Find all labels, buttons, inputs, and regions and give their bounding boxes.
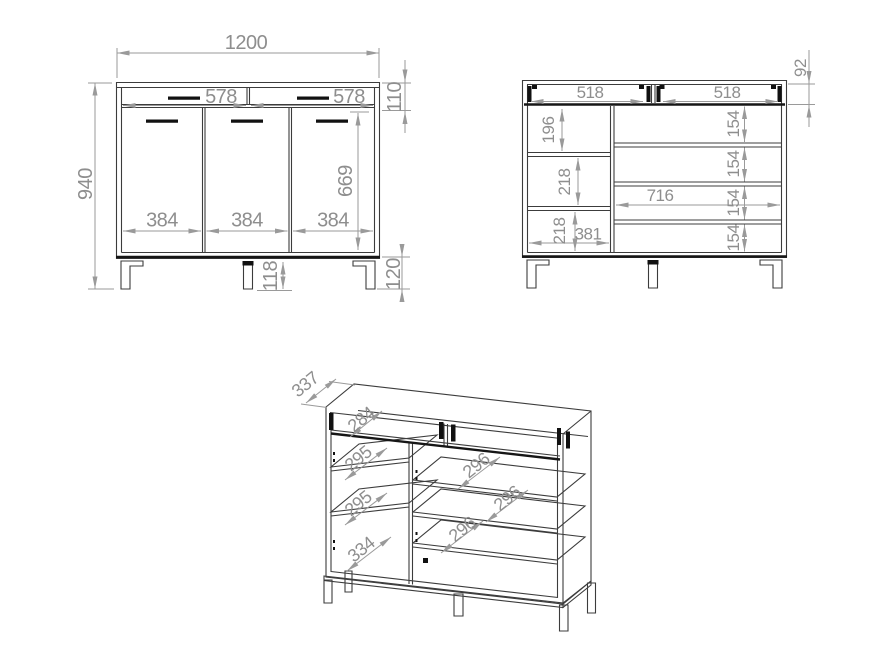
dim-drawer-inner-1: 518 (577, 83, 604, 102)
dim-left-width: 381 (575, 225, 602, 244)
dim-overall-height: 940 (75, 168, 97, 200)
dim-gap-4: 154 (724, 225, 743, 252)
dim-gap-2: 154 (724, 151, 743, 178)
dim-door-height: 669 (335, 165, 357, 197)
dim-left-comp-3: 218 (550, 218, 569, 245)
dim-drawer-width-2: 578 (333, 86, 365, 108)
dim-left-comp-1: 196 (539, 117, 558, 144)
front-handles (146, 97, 348, 266)
dim-left-comp-2: 218 (555, 169, 574, 196)
dim-gap-3: 154 (724, 190, 743, 217)
dim-drawer-row-height: 110 (384, 81, 406, 112)
iso-view: 337 284 295 295 334 296 296 296 (288, 367, 596, 631)
internal-view: 92 518 518 196 218 218 381 716 154 154 1… (522, 50, 815, 288)
dim-door-width-3: 384 (317, 210, 349, 232)
drawing-sheet: 1200 940 578 578 110 669 384 384 384 118… (0, 0, 888, 666)
dim-center-leg-height: 118 (260, 260, 282, 291)
dim-door-width-1: 384 (146, 210, 178, 232)
dim-door-width-2: 384 (231, 210, 263, 232)
technical-drawing: 1200 940 578 578 110 669 384 384 384 118… (0, 0, 888, 666)
dim-gap-1: 154 (724, 111, 743, 138)
dim-drawer-inner-2: 518 (714, 83, 741, 102)
front-view: 1200 940 578 578 110 669 384 384 384 118… (75, 32, 411, 301)
dim-overall-width: 1200 (225, 32, 268, 54)
dim-depth: 337 (288, 367, 323, 401)
dim-drawer-width-1: 578 (205, 86, 237, 108)
dim-right-width: 716 (647, 186, 674, 205)
dim-drawer-inner-height: 92 (791, 59, 810, 77)
dim-leg-height: 120 (383, 258, 405, 290)
